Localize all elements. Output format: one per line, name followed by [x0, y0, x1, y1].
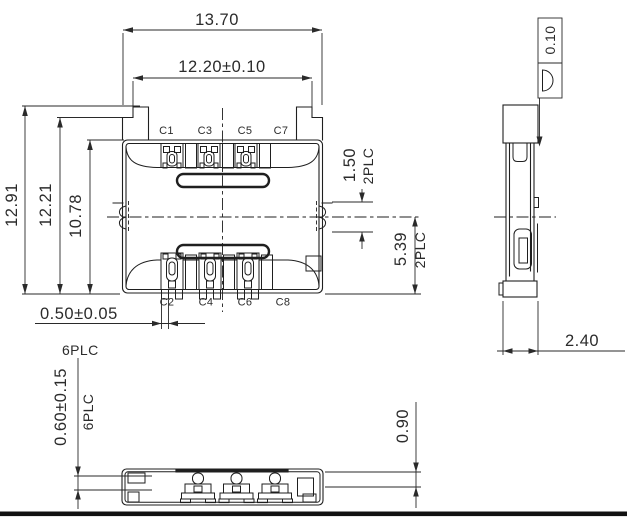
dim-body-width-label: 12.20±0.10 — [178, 58, 265, 76]
side-view-foot — [503, 281, 537, 297]
contact-c2 — [161, 253, 183, 299]
feature-control-frame: 0.10 — [537, 18, 563, 147]
contact-c6 — [237, 253, 259, 299]
label-c6: C6 — [238, 297, 253, 309]
left-ear-tab — [123, 107, 149, 140]
right-ear-tab — [297, 107, 323, 140]
contact-c3 — [198, 144, 220, 169]
dim-standoff-places-label: 6PLC — [80, 394, 96, 431]
profile-tolerance-value: 0.10 — [542, 26, 558, 55]
contact-c4 — [199, 253, 221, 299]
dim-half-depth: 5.39 2PLC — [325, 217, 428, 294]
dim-terminal-width: 0.50±0.05 — [35, 300, 205, 329]
dim-terminal-places-label: 6PLC — [62, 342, 99, 358]
dim-terminal-width-label: 0.50±0.05 — [40, 305, 118, 323]
sim-connector-drawing: C1 C3 C5 C7 C2 C4 C6 C8 0.10 — [0, 0, 627, 517]
top-left-shoulder — [126, 147, 157, 168]
dim-side-width-label: 2.40 — [565, 332, 599, 350]
front-view-terminal-2 — [219, 473, 254, 503]
dim-notch-offset: 1.50 2PLC — [332, 148, 376, 249]
profile-of-surface-icon — [543, 70, 554, 91]
label-c3: C3 — [198, 125, 213, 137]
side-view-bump — [534, 198, 539, 208]
dim-notch-places-label: 2PLC — [360, 148, 376, 185]
side-view-tab — [513, 143, 527, 162]
front-view-right-latch — [298, 478, 317, 502]
front-view-left-latch — [128, 473, 145, 502]
contact-c1 — [161, 144, 183, 169]
front-view-inner — [125, 472, 320, 503]
dim-notch-offset-label: 1.50 — [341, 148, 359, 182]
dim-mid-depth-label: 12.21 — [37, 183, 55, 227]
dim-half-depth-label: 5.39 — [392, 232, 410, 266]
label-c4: C4 — [199, 297, 214, 309]
bottom-right-shoulder — [288, 260, 319, 286]
dim-standoff-label: 0.60±0.15 — [52, 368, 70, 446]
label-c5: C5 — [238, 125, 253, 137]
fcf-leader-arrow — [537, 137, 543, 147]
pcb-baseline — [0, 512, 627, 517]
label-c8: C8 — [276, 297, 291, 309]
dim-half-depth-places-label: 2PLC — [412, 232, 428, 269]
label-c1: C1 — [159, 125, 174, 137]
side-view: 0.10 — [494, 18, 562, 297]
dim-side-width: 2.40 — [497, 301, 625, 355]
engineering-drawing-canvas: C1 C3 C5 C7 C2 C4 C6 C8 0.10 — [0, 0, 627, 517]
top-contact-springs — [161, 144, 257, 169]
upper-card-slot — [177, 174, 269, 187]
top-right-shoulder — [288, 147, 319, 168]
side-view-body — [506, 143, 534, 281]
bottom-left-shoulder — [126, 260, 157, 286]
top-view: C1 C3 C5 C7 C2 C4 C6 C8 — [107, 107, 421, 312]
dim-standoff: 0.60±0.15 6PLC — [52, 358, 152, 509]
dim-overall-depth-label: 12.91 — [3, 183, 21, 227]
side-view-top-block — [503, 105, 538, 143]
front-view-terminal-3 — [258, 473, 293, 503]
side-view-slot-inner — [519, 238, 528, 263]
dim-lead-height-label: 0.90 — [394, 409, 412, 443]
dim-body-width: 12.20±0.10 — [133, 58, 312, 115]
contact-c5 — [235, 144, 257, 169]
side-view-foot-tab — [499, 283, 503, 295]
front-view-terminal-1 — [181, 473, 216, 503]
dim-overall-width-label: 13.70 — [195, 11, 239, 29]
dim-body-depth-label: 10.78 — [67, 194, 85, 238]
label-c7: C7 — [274, 125, 289, 137]
dim-lead-height: 0.90 — [325, 402, 421, 508]
